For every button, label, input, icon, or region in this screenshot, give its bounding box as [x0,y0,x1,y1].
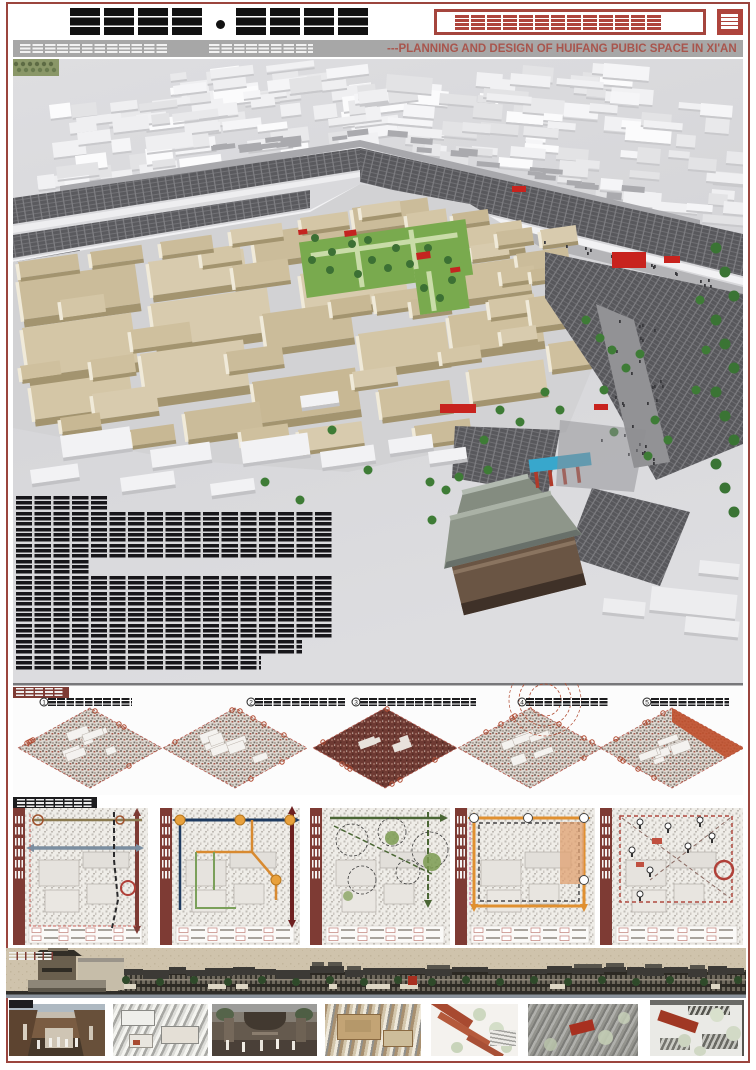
svg-text:3: 3 [354,700,358,707]
svg-text:4: 4 [520,700,524,707]
svg-text:5: 5 [645,700,649,707]
svg-text:2: 2 [249,700,253,707]
svg-text:1: 1 [42,700,46,707]
